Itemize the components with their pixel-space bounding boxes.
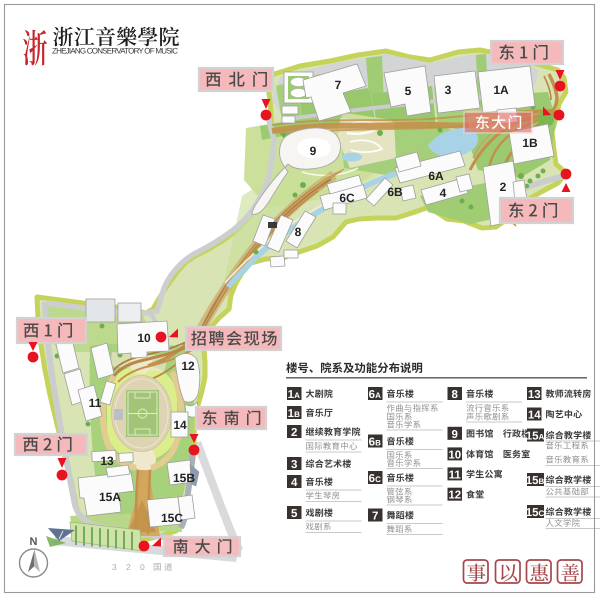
svg-text:12: 12 bbox=[448, 490, 461, 502]
svg-text:8: 8 bbox=[295, 225, 302, 239]
svg-text:10: 10 bbox=[448, 449, 461, 461]
svg-text:8: 8 bbox=[452, 389, 459, 401]
svg-text:6A: 6A bbox=[428, 169, 444, 183]
svg-text:N: N bbox=[30, 536, 38, 548]
svg-text:0: 0 bbox=[140, 562, 145, 572]
svg-text:7: 7 bbox=[372, 511, 378, 523]
svg-text:15A: 15A bbox=[99, 490, 121, 504]
svg-text:4: 4 bbox=[440, 186, 447, 200]
svg-text:5: 5 bbox=[291, 508, 298, 520]
svg-text:15A: 15A bbox=[526, 431, 545, 443]
svg-text:10: 10 bbox=[137, 331, 151, 345]
svg-text:5: 5 bbox=[405, 84, 412, 98]
svg-text:11: 11 bbox=[449, 469, 462, 481]
svg-text:2: 2 bbox=[291, 427, 297, 439]
svg-text:6B: 6B bbox=[387, 185, 403, 199]
svg-text:9: 9 bbox=[452, 429, 458, 441]
svg-text:6A: 6A bbox=[369, 389, 381, 401]
svg-text:15B: 15B bbox=[526, 475, 545, 487]
svg-text:11: 11 bbox=[89, 396, 102, 410]
svg-text:3: 3 bbox=[112, 562, 117, 572]
svg-text:15C: 15C bbox=[161, 511, 183, 525]
svg-text:15C: 15C bbox=[526, 507, 545, 519]
svg-text:7: 7 bbox=[335, 78, 342, 92]
svg-text:14: 14 bbox=[173, 418, 187, 432]
svg-text:1A: 1A bbox=[288, 389, 300, 401]
svg-text:1B: 1B bbox=[288, 408, 300, 420]
svg-text:2: 2 bbox=[126, 562, 131, 572]
svg-text:1A: 1A bbox=[493, 83, 509, 97]
svg-text:4: 4 bbox=[291, 477, 298, 489]
svg-text:ZHEJIANG CONSERVATORY OF MUSIC: ZHEJIANG CONSERVATORY OF MUSIC bbox=[52, 47, 178, 56]
svg-text:15B: 15B bbox=[173, 471, 195, 485]
svg-text:6B: 6B bbox=[369, 437, 381, 449]
svg-text:6C: 6C bbox=[369, 473, 381, 485]
svg-text:6C: 6C bbox=[339, 191, 355, 205]
svg-text:3: 3 bbox=[291, 459, 297, 471]
svg-text:12: 12 bbox=[181, 359, 195, 373]
svg-text:1B: 1B bbox=[522, 136, 538, 150]
svg-text:2: 2 bbox=[500, 180, 507, 194]
svg-text:13: 13 bbox=[528, 389, 541, 401]
svg-text:13: 13 bbox=[100, 454, 114, 468]
svg-text:3: 3 bbox=[445, 83, 452, 97]
svg-text:14: 14 bbox=[528, 410, 541, 422]
svg-text:9: 9 bbox=[310, 144, 317, 158]
